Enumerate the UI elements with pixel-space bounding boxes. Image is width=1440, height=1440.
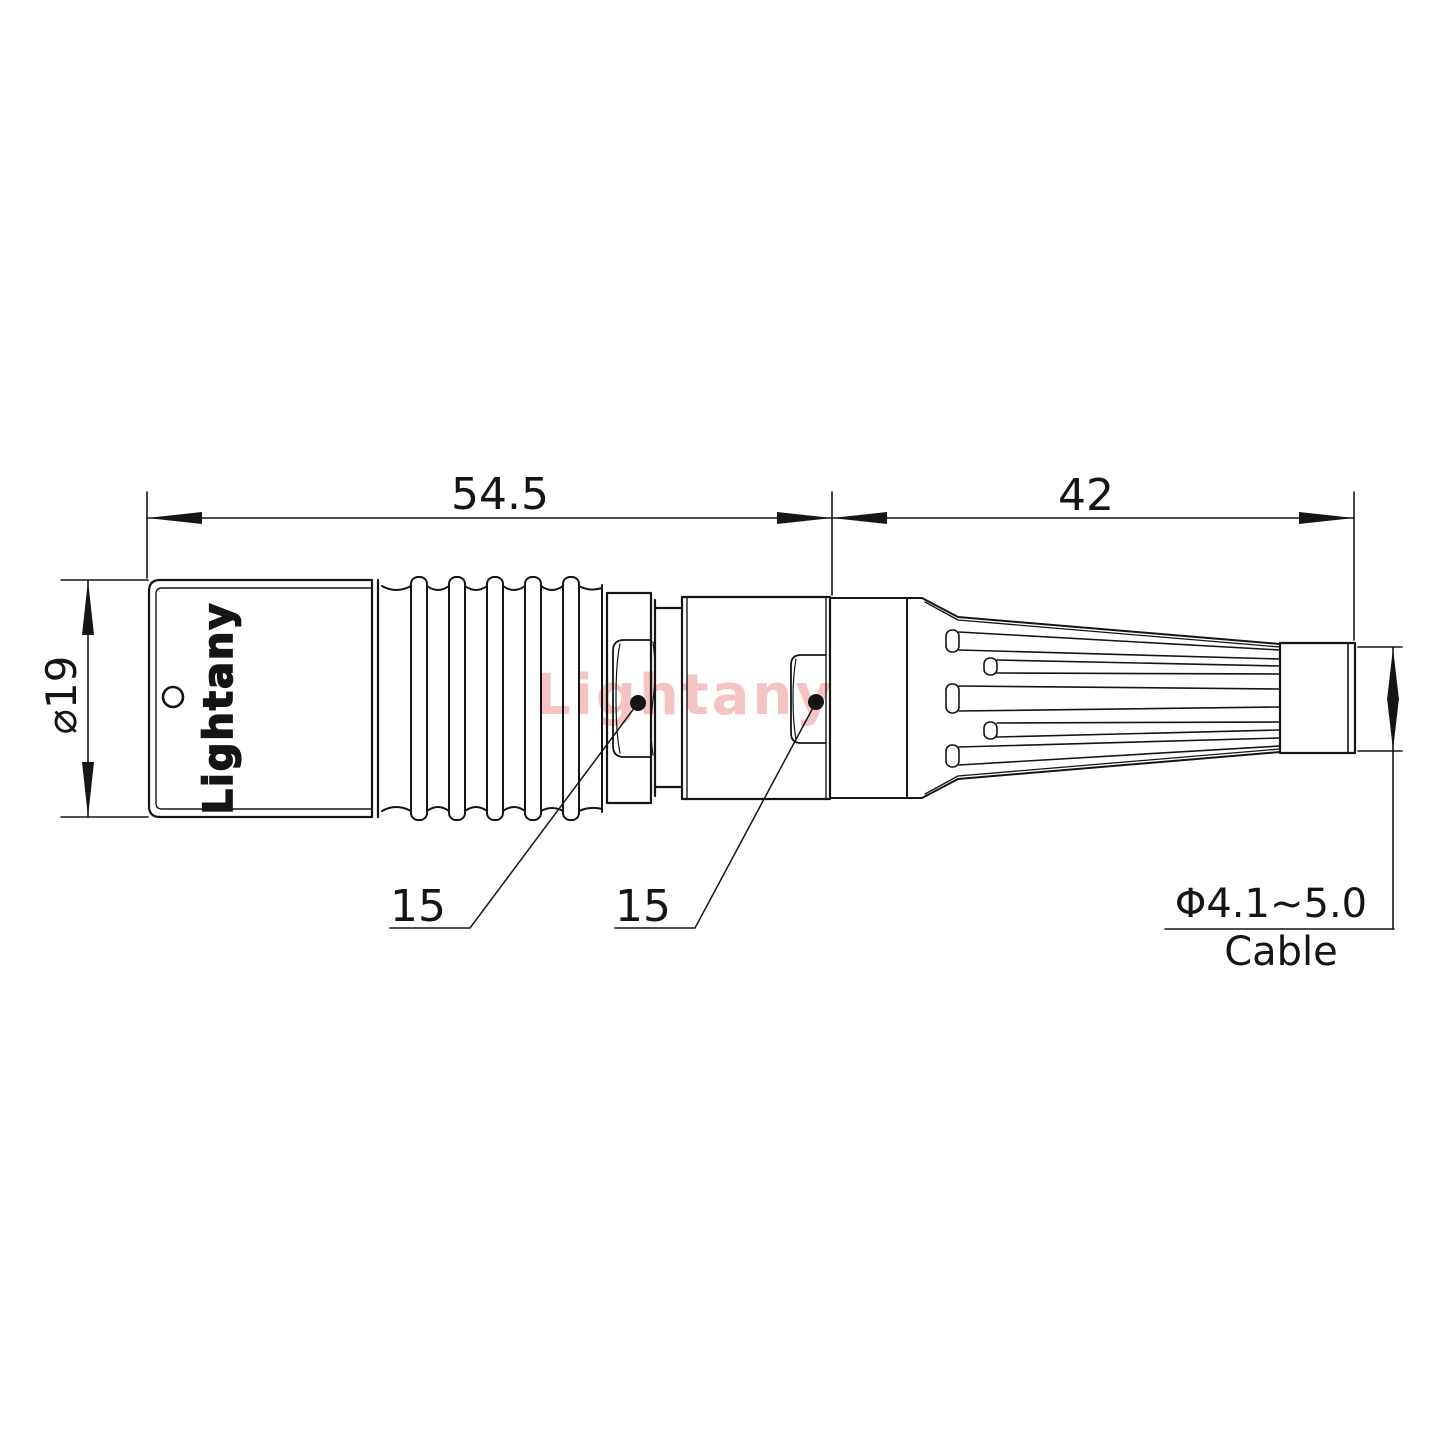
technical-drawing-page: Lightany [0,0,1440,1440]
arrow-42-right [1299,512,1354,524]
dim-rear-length: 42 [1058,470,1114,521]
neck [655,608,682,787]
arrow-42-left [832,512,887,524]
leader-dot-front [630,695,646,711]
connector-drawing: 54.5 42 ⌀19 15 15 Φ4.1~5.0 Cable Lightan… [0,0,1440,1440]
dim-front-length: 54.5 [451,469,549,520]
rear-body [682,597,830,799]
arrow-dia-bottom [82,762,94,817]
dim-diameter: ⌀19 [37,656,86,735]
arrow-54-left [147,512,202,524]
knurl-grip [382,577,602,820]
cable-word: Cable [1224,929,1338,975]
arrow-dia-top [82,580,94,635]
mid-block [607,593,655,803]
cap-hole [163,687,183,707]
dim-cable-range: Φ4.1~5.0 [1175,881,1367,927]
arrow-cable-top [1387,648,1399,700]
connector-outline [149,577,1355,820]
dim-recess-rear: 15 [615,881,671,932]
dimension-lines [61,492,1402,929]
strain-relief [830,598,1280,798]
brand-label: Lightany [196,602,242,815]
arrow-cable-bottom [1387,698,1399,750]
arrow-54-right [777,512,832,524]
cable-end [1280,643,1355,753]
front-cap [149,580,378,817]
dim-recess-front: 15 [390,881,446,932]
leader-dot-rear [808,694,824,710]
